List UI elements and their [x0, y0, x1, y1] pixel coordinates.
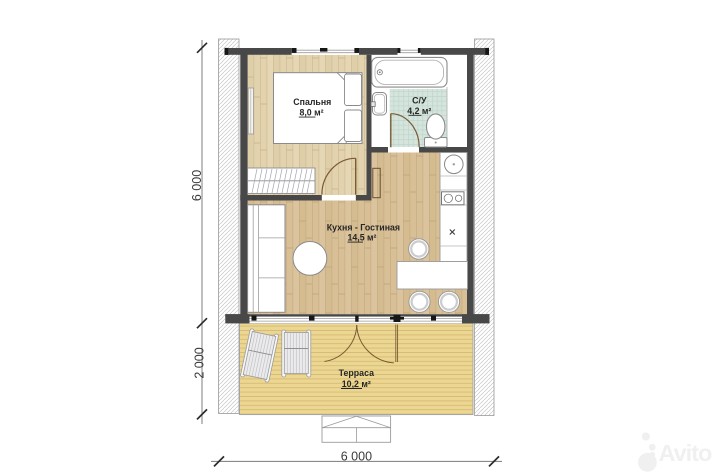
svg-text:4,2 м²: 4,2 м²	[407, 106, 431, 116]
svg-text:2 000: 2 000	[193, 347, 207, 378]
svg-text:6 000: 6 000	[341, 449, 372, 463]
svg-text:Спальня: Спальня	[293, 97, 331, 107]
svg-text:Кухня - Гостиная: Кухня - Гостиная	[327, 222, 400, 232]
svg-text:Терраса: Терраса	[339, 368, 374, 378]
svg-text:Avito: Avito	[659, 440, 713, 466]
svg-text:6 000: 6 000	[190, 170, 204, 201]
svg-text:14,5 м²: 14,5 м²	[347, 233, 376, 243]
svg-text:С/У: С/У	[412, 96, 427, 106]
svg-text:10,2 м²: 10,2 м²	[342, 379, 371, 389]
svg-text:8,0 м²: 8,0 м²	[299, 108, 323, 118]
